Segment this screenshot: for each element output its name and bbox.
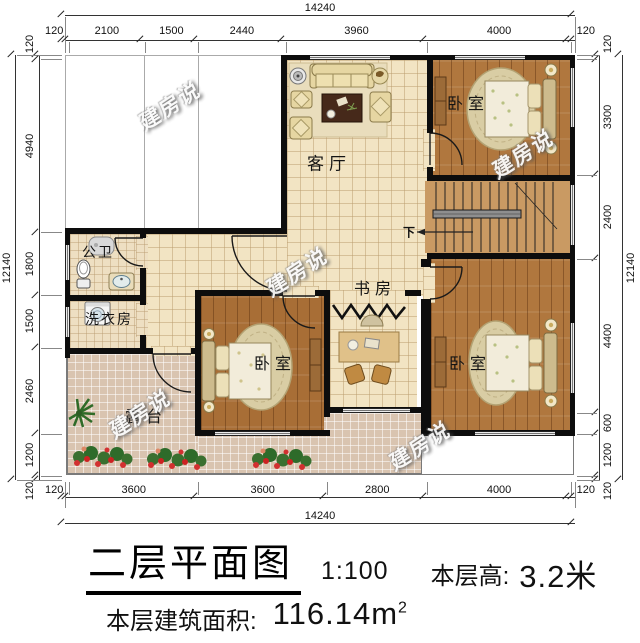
dimension-label: 2440 [230,25,254,37]
dimension-label: 1200 [24,443,36,467]
window [475,431,555,436]
dimension-label: 14240 [305,510,336,522]
dimension-label: 4000 [487,25,511,37]
floor-height-value: 3.2米 [519,551,597,596]
dimension-label: 120 [602,35,614,53]
dimension-label: 120 [24,35,36,53]
dimension-label: 120 [45,484,63,496]
room-label-study: 书房 [354,275,396,299]
dimension-label: 1200 [602,443,614,467]
drawing-scale: 1:100 [321,557,389,586]
dimension-label: 3600 [122,484,146,496]
window [310,55,390,60]
terrace-plant [69,399,95,427]
window [65,307,70,337]
room-label-bedroom2: 卧室 [254,350,296,374]
dimension-label: 3960 [344,25,368,37]
dimension-label: 120 [45,25,63,37]
floor-plan-page: { "drawing": { "title": "二层平面图", "scale"… [0,0,640,643]
dimension-label: 600 [602,414,614,432]
study-furniture [333,305,405,385]
floor-area-value: 116.14m2 [273,596,408,632]
dimension-label: 12140 [625,252,637,283]
dimension-label: 120 [577,25,595,37]
dimension-label: 120 [24,482,36,500]
dimension-label: 12140 [1,252,13,283]
window [570,185,575,245]
window [343,408,410,413]
floor-area-label: 本层建筑面积: [106,601,257,636]
dimension-label: 2460 [24,378,36,402]
room-label-living: 客厅 [307,150,351,175]
dimension-label: 2100 [95,25,119,37]
room-label-laundry: 洗衣房 [85,309,133,329]
floor-plan: 客厅 卧室 卧室 卧室 书房 公卫 洗衣房 露台 下 建房说 建房说 建房说 建… [65,55,575,480]
window [570,68,575,127]
dimension-label: 14240 [305,2,336,14]
dimension-label: 3600 [250,484,274,496]
window [215,431,290,436]
dimension-label: 2800 [365,484,389,496]
dimension-label: 1500 [24,309,36,333]
dimension-label: 4400 [602,324,614,348]
dimension-label: 1800 [24,251,36,275]
area-block: 本层建筑面积: 116.14m2 [106,601,408,636]
stairs-treads [417,182,557,252]
dimension-label: 4000 [487,484,511,496]
title-block: 二层平面图 1:100 本层高: 3.2米 [86,545,597,596]
drawing-title: 二层平面图 [86,545,301,595]
window [65,245,70,280]
dimension-label: 1500 [159,25,183,37]
room-label-bedroom3: 卧室 [449,350,491,374]
room-label-bathroom: 公卫 [82,242,114,262]
dimension-label: 3300 [602,105,614,129]
room-label-bedroom1: 卧室 [447,90,489,114]
window [570,323,575,393]
dimension-label: 2400 [602,204,614,228]
window [455,55,525,60]
floor-height-label: 本层高: [431,556,510,591]
living-room-furniture [289,63,391,139]
stairs-down-label: 下 [403,224,415,241]
dimension-label: 120 [577,484,595,496]
dimension-label: 120 [602,482,614,500]
dimension-label: 4940 [24,133,36,157]
